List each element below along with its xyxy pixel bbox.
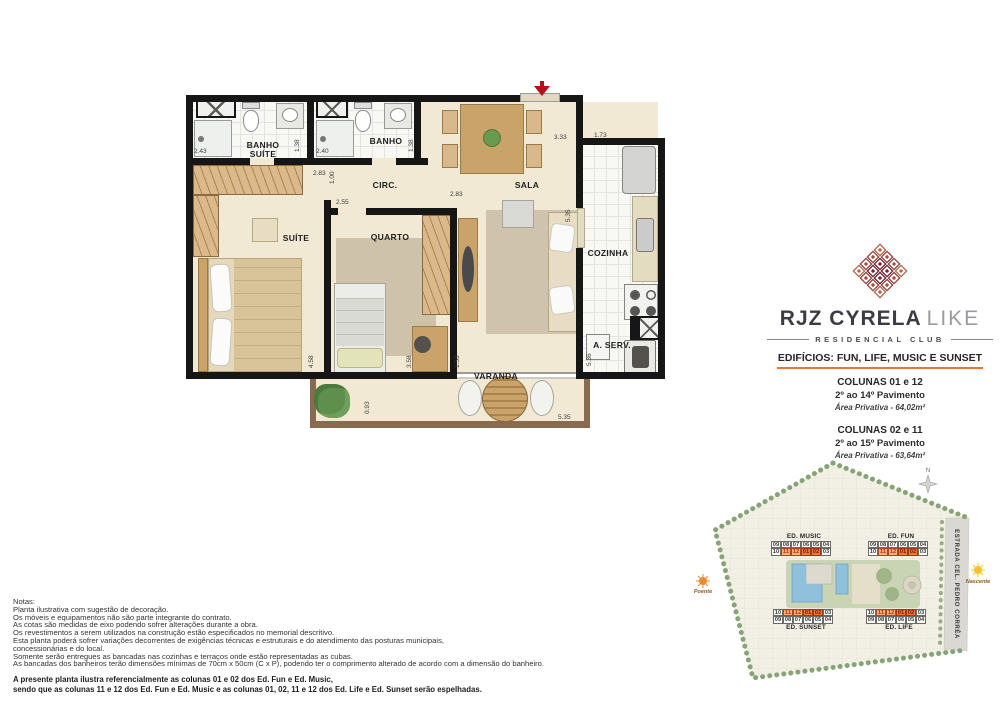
dim-label: 5.36: [586, 353, 593, 366]
page: BANHO SUÍTE BANHO CIRC. SALA SUÍTE QUART…: [0, 0, 1000, 707]
unit-row: 101112010203: [866, 609, 932, 616]
unit-cell: 07: [791, 541, 801, 548]
unit-cell: 09: [866, 616, 876, 623]
dining-chair: [442, 110, 458, 134]
unit-cell: 04: [918, 541, 928, 548]
tv: [462, 246, 474, 292]
spec-floors-1: 2º ao 14º Pavimento: [757, 390, 1000, 401]
entrance-arrow-head: [534, 86, 550, 96]
building-units: 101112010203090807060504: [866, 609, 932, 624]
unit-cell: 11: [781, 548, 791, 555]
unit-cell: 02: [813, 609, 823, 616]
tagline-rule-left: [767, 339, 809, 340]
unit-cell: 10: [773, 609, 783, 616]
dim-label: 2.43: [194, 148, 207, 155]
balcony-chair: [458, 380, 482, 416]
unit-cell: 08: [878, 541, 888, 548]
toilet-tank: [354, 102, 372, 109]
quarto-wardrobe: [422, 215, 452, 315]
notes-emphasis-line: A presente planta ilustra referencialmen…: [13, 675, 653, 684]
sofa-pillow: [548, 284, 576, 315]
dining-chair: [526, 144, 542, 168]
wall-segment: [186, 95, 520, 102]
siteplan-building-life: 101112010203090807060504 ED. LIFE: [866, 609, 932, 632]
unit-row: 101112010203: [868, 548, 934, 555]
unit-cell: 02: [811, 548, 821, 555]
unit-cell: 11: [878, 548, 888, 555]
shower-head-icon: [198, 136, 204, 142]
quarto-chair: [414, 336, 431, 353]
building-units: 090807060504101112010203: [868, 541, 934, 556]
unit-cell: 10: [771, 548, 781, 555]
wall-segment: [186, 158, 250, 165]
siteplan-building-sunset: 101112010203090807060504 ED. SUNSET: [773, 609, 839, 632]
suite-pillow: [209, 317, 232, 366]
balcony-rim: [584, 379, 590, 428]
unit-cell: 05: [908, 541, 918, 548]
brand-title: RJZ CYRELALIKE: [757, 307, 1000, 331]
unit-cell: 07: [888, 541, 898, 548]
stove-burners: [630, 290, 640, 300]
unit-cell: 05: [811, 541, 821, 548]
street-name: ESTRADA CEL. PEDRO CORRÊA: [953, 529, 961, 639]
unit-cell: 04: [823, 616, 833, 623]
wall-segment: [186, 372, 457, 379]
siteplan-building-fun: ED. FUN 090807060504101112010203: [868, 533, 934, 556]
table-plant: [483, 129, 501, 147]
quarto-pillow: [337, 348, 383, 368]
plaza-center: [908, 581, 916, 589]
room-label-aserv: A. SERV.: [593, 340, 631, 350]
unit-cell: 06: [896, 616, 906, 623]
dining-chair: [526, 110, 542, 134]
unit-cell: 07: [793, 616, 803, 623]
spec-columns-block-1: COLUNAS 01 e 12 2º ao 14º Pavimento Área…: [757, 377, 1000, 412]
dining-chair: [442, 144, 458, 168]
unit-cell: 06: [801, 541, 811, 548]
sun-east-icon: Nascente: [966, 563, 990, 585]
unit-cell: 08: [783, 616, 793, 623]
spec-floors-2: 2º ao 15º Pavimento: [757, 438, 1000, 449]
room-label-sala: SALA: [515, 180, 539, 190]
sink-basin: [390, 108, 406, 122]
suite-wardrobe: [193, 195, 219, 257]
siteplan-building-music: ED. MUSIC 090807060504101112010203: [771, 533, 837, 556]
suite-bed-headboard: [198, 258, 208, 372]
brand-name: RJZ CYRELA: [780, 307, 922, 330]
wall-segment: [576, 138, 665, 145]
balcony-rim: [310, 421, 590, 428]
unit-cell: 09: [771, 541, 781, 548]
spec-columns-2: COLUNAS 02 e 11: [757, 425, 1000, 436]
clubhouse: [806, 564, 832, 584]
unit-cell: 01: [898, 548, 908, 555]
wall-segment: [331, 208, 338, 215]
unit-cell: 12: [793, 609, 803, 616]
sofa-pillow: [548, 222, 576, 253]
notes-line: As bancadas dos banheiros terão dimensõe…: [13, 660, 653, 668]
room-label-quarto: QUARTO: [371, 232, 409, 242]
dim-label: 3.58: [406, 355, 413, 368]
unit-cell: 12: [791, 548, 801, 555]
dim-label: 2.40: [316, 148, 329, 155]
room-label-circ: CIRC.: [373, 180, 398, 190]
toilet: [355, 110, 371, 132]
wall-segment: [307, 95, 314, 165]
building-name: ED. FUN: [868, 533, 934, 541]
unit-cell: 09: [868, 541, 878, 548]
suite-bed-blanket: [234, 259, 301, 371]
site-plan-map: ESTRADA CEL. PEDRO CORRÊA N: [688, 458, 1000, 706]
unit-row: 101112010203: [773, 609, 839, 616]
shaft: [196, 100, 236, 118]
tagline-rule-right: [951, 339, 993, 340]
deck: [852, 564, 880, 604]
compass-icon: N: [919, 467, 937, 493]
room-label-varanda: VARANDA: [474, 371, 518, 381]
brand-logo-diamond: [851, 242, 909, 300]
sink-basin: [282, 108, 298, 122]
dim-label: 2.83: [313, 170, 326, 177]
building-units: 101112010203090807060504: [773, 609, 839, 624]
unit-cell: 03: [916, 609, 926, 616]
unit-cell: 01: [896, 609, 906, 616]
dim-label: 2.55: [336, 199, 349, 206]
fridge: [622, 146, 656, 194]
dim-label: 2.83: [450, 191, 463, 198]
unit-cell: 03: [823, 609, 833, 616]
unit-row: 090807060504: [773, 616, 839, 623]
entrance-arrow: [533, 81, 551, 96]
wall-segment: [576, 145, 583, 208]
balcony-chair: [530, 380, 554, 416]
room-label-banho-suite: BANHO SUÍTE: [238, 141, 288, 159]
building-name: ED. MUSIC: [771, 533, 837, 541]
floor-plan: BANHO SUÍTE BANHO CIRC. SALA SUÍTE QUART…: [186, 88, 666, 444]
washer-drum: [632, 346, 649, 368]
wall-segment: [324, 200, 331, 379]
armchair: [502, 200, 534, 228]
balcony-table: [482, 376, 528, 422]
wall-segment: [576, 372, 665, 379]
room-label-suite: SUÍTE: [283, 233, 310, 243]
wall-segment: [186, 95, 193, 379]
unit-cell: 01: [801, 548, 811, 555]
unit-cell: 12: [888, 548, 898, 555]
unit-cell: 10: [868, 548, 878, 555]
spec-columns-1: COLUNAS 01 e 12: [757, 377, 1000, 388]
unit-cell: 04: [916, 616, 926, 623]
unit-cell: 12: [886, 609, 896, 616]
unit-cell: 01: [803, 609, 813, 616]
wall-segment: [274, 158, 372, 165]
suite-wardrobe: [193, 165, 303, 195]
unit-row: 090807060504: [771, 541, 837, 548]
building-units: 090807060504101112010203: [771, 541, 837, 556]
garden: [885, 587, 899, 601]
dim-label: 5.35: [565, 209, 572, 222]
unit-cell: 11: [783, 609, 793, 616]
unit-cell: 04: [821, 541, 831, 548]
unit-cell: 02: [908, 548, 918, 555]
unit-cell: 05: [813, 616, 823, 623]
wall-segment: [366, 208, 457, 215]
unit-row: 090807060504: [868, 541, 934, 548]
unit-cell: 08: [781, 541, 791, 548]
wall-segment: [396, 158, 428, 165]
notes-block: Notas: Planta ilustrativa com sugestão d…: [13, 598, 653, 694]
toilet-tank: [242, 102, 260, 109]
spec-area-1: Área Privativa - 64,02m²: [757, 403, 1000, 412]
unit-cell: 06: [803, 616, 813, 623]
unit-cell: 06: [898, 541, 908, 548]
kitchen-sink: [636, 218, 654, 252]
wall-segment: [414, 95, 421, 165]
quarto-bed-blanket: [336, 298, 384, 346]
unit-row: 090807060504: [866, 616, 932, 623]
garden: [876, 568, 892, 584]
shower-head-icon: [320, 136, 326, 142]
suite-pillow: [209, 263, 232, 312]
dim-label: 1.38: [408, 139, 415, 152]
brand-tagline: RESIDENCIAL CLUB: [757, 335, 1000, 344]
wall-segment: [450, 208, 457, 379]
unit-cell: 03: [821, 548, 831, 555]
wall-segment: [630, 316, 638, 340]
tagline-text: RESIDENCIAL CLUB: [815, 335, 945, 344]
spec-block: EDIFÍCIOS: FUN, LIFE, MUSIC E SUNSET COL…: [757, 352, 1000, 460]
sun-west-label: Poente: [694, 589, 712, 595]
dim-label: 1.53: [454, 355, 461, 368]
room-label-cozinha: COZINHA: [588, 248, 629, 258]
unit-cell: 10: [866, 609, 876, 616]
notes-line: Esta planta poderá sofrer variações deco…: [13, 637, 653, 645]
kids-pool: [836, 564, 848, 594]
compass-north-label: N: [926, 467, 931, 474]
suite-pouf: [252, 218, 278, 242]
sun-west-icon: Poente: [694, 574, 712, 595]
brand-block: RJZ CYRELALIKE RESIDENCIAL CLUB: [757, 242, 1000, 344]
unit-row: 101112010203: [771, 548, 837, 555]
dim-label: 0.93: [364, 401, 371, 414]
shaft: [316, 100, 348, 118]
notes-emphasis-line: sendo que as colunas 11 e 12 dos Ed. Fun…: [13, 685, 653, 694]
room-label-banho: BANHO: [370, 136, 403, 146]
dim-label: 1.38: [294, 139, 301, 152]
stove: [624, 284, 658, 320]
unit-cell: 05: [906, 616, 916, 623]
unit-cell: 02: [906, 609, 916, 616]
toilet: [243, 110, 259, 132]
unit-cell: 09: [773, 616, 783, 623]
dim-label: 1.73: [594, 132, 607, 139]
wall-segment: [576, 248, 583, 379]
brand-name-light: LIKE: [927, 307, 981, 330]
unit-cell: 07: [886, 616, 896, 623]
spec-columns-block-2: COLUNAS 02 e 11 2º ao 15º Pavimento Área…: [757, 425, 1000, 460]
balcony-plant: [314, 384, 350, 418]
dim-label: 5.35: [558, 414, 571, 421]
spec-heading: EDIFÍCIOS: FUN, LIFE, MUSIC E SUNSET: [757, 352, 1000, 364]
sun-east-label: Nascente: [966, 579, 990, 585]
pass-counter: [577, 208, 585, 248]
spec-accent-rule: [777, 367, 983, 369]
unit-cell: 03: [918, 548, 928, 555]
site-plan: ESTRADA CEL. PEDRO CORRÊA N: [688, 458, 1000, 706]
dim-label: 3.33: [554, 134, 567, 141]
unit-cell: 11: [876, 609, 886, 616]
dim-label: 4.58: [308, 355, 315, 368]
unit-cell: 08: [876, 616, 886, 623]
wall-segment: [658, 138, 665, 379]
dim-label: 1.00: [329, 171, 336, 184]
